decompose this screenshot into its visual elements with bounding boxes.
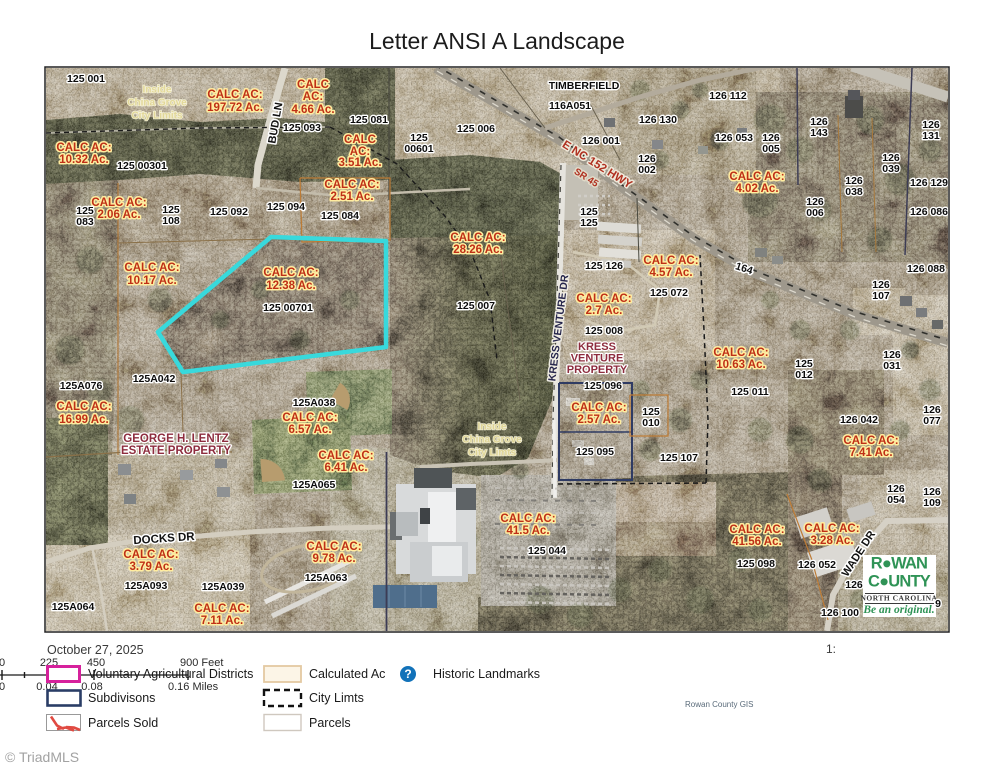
svg-text:Be an original.: Be an original. [862,604,934,616]
svg-text:125 011: 125 011 [731,386,769,398]
svg-text:054: 054 [887,494,905,506]
svg-text:CALC AC:: CALC AC: [500,513,555,525]
svg-text:126 112: 126 112 [709,90,747,102]
svg-text:Voluntary Agricultural Distric: Voluntary Agricultural Districts [88,667,253,681]
svg-text:125 044: 125 044 [528,545,566,557]
svg-text:VENTURE: VENTURE [571,352,624,364]
svg-text:038: 038 [845,186,863,198]
svg-text:197.72 Ac.: 197.72 Ac. [207,102,263,114]
svg-text:2.57 Ac.: 2.57 Ac. [577,414,620,426]
svg-text:10.63 Ac.: 10.63 Ac. [716,359,765,371]
svg-text:41.56 Ac.: 41.56 Ac. [732,536,781,548]
svg-text:6.57 Ac.: 6.57 Ac. [288,424,331,436]
svg-text:4.57 Ac.: 4.57 Ac. [649,267,692,279]
svg-text:126 086: 126 086 [910,206,948,218]
svg-text:© TriadMLS: © TriadMLS [5,749,79,765]
svg-text:CALC AC:: CALC AC: [56,401,111,413]
svg-text:City Limts: City Limts [468,448,517,459]
svg-text:AC:: AC: [303,91,323,103]
svg-text:126 042: 126 042 [840,414,878,426]
svg-text:125A063: 125A063 [305,572,348,584]
svg-text:CALC AC:: CALC AC: [123,549,178,561]
svg-text:CALC AC:: CALC AC: [282,412,337,424]
svg-text:China Grove: China Grove [127,98,187,109]
svg-text:7.41 Ac.: 7.41 Ac. [849,447,892,459]
svg-text:CALC: CALC [344,134,376,146]
svg-text:?: ? [404,667,411,681]
svg-text:125A065: 125A065 [293,479,336,491]
svg-text:CALC AC:: CALC AC: [843,435,898,447]
svg-text:126: 126 [845,579,863,591]
svg-text:125 008: 125 008 [585,325,623,337]
svg-text:Inside: Inside [143,85,172,96]
svg-text:9: 9 [935,598,941,610]
svg-text:PROPERTY: PROPERTY [567,364,628,376]
svg-text:ESTATE PROPERTY: ESTATE PROPERTY [121,445,231,457]
svg-text:125 096: 125 096 [584,380,622,392]
svg-text:16.99 Ac.: 16.99 Ac. [59,414,108,426]
svg-text:126 053: 126 053 [715,132,753,144]
svg-text:CALC AC:: CALC AC: [318,450,373,462]
svg-text:12.38 Ac.: 12.38 Ac. [266,280,315,292]
svg-text:Parcels Sold: Parcels Sold [88,716,158,730]
svg-text:NORTH CAROLINA: NORTH CAROLINA [861,594,938,603]
svg-text:China Grove: China Grove [462,435,522,446]
svg-text:Calculated Ac: Calculated Ac [309,667,385,681]
svg-text:0: 0 [0,681,5,693]
svg-text:2.51 Ac.: 2.51 Ac. [330,191,373,203]
svg-text:109: 109 [923,497,941,509]
svg-text:CALC AC:: CALC AC: [450,232,505,244]
svg-text:126 130: 126 130 [639,114,677,126]
svg-text:CALC AC:: CALC AC: [91,197,146,209]
svg-text:4.02 Ac.: 4.02 Ac. [735,183,778,195]
svg-text:Inside: Inside [478,422,507,433]
svg-text:125A076: 125A076 [60,380,103,392]
svg-text:0.16 Miles: 0.16 Miles [168,681,219,693]
svg-text:CALC AC:: CALC AC: [571,402,626,414]
svg-text:CALC AC:: CALC AC: [263,267,318,279]
svg-text:039: 039 [882,163,900,175]
svg-text:City Limits: City Limits [131,111,183,122]
svg-text:077: 077 [923,415,941,427]
svg-text:125 094: 125 094 [267,201,305,213]
svg-text:125A039: 125A039 [202,581,245,593]
svg-text:CALC: CALC [297,79,329,91]
svg-text:CALC AC:: CALC AC: [124,262,179,274]
svg-text:October 27, 2025: October 27, 2025 [47,643,144,657]
svg-text:006: 006 [806,207,824,219]
svg-text:2.7 Ac.: 2.7 Ac. [586,305,623,317]
svg-text:C●UNTY: C●UNTY [868,572,931,590]
svg-text:Letter ANSI A Landscape: Letter ANSI A Landscape [369,28,625,54]
svg-text:031: 031 [883,360,901,372]
svg-text:CALC AC:: CALC AC: [194,603,249,615]
svg-text:R●WAN: R●WAN [871,554,927,572]
svg-text:KRESS: KRESS [578,341,616,353]
svg-text:125 007: 125 007 [457,300,495,312]
svg-text:002: 002 [638,164,656,176]
svg-text:125 093: 125 093 [283,122,321,134]
svg-text:TIMBERFIELD: TIMBERFIELD [549,80,620,92]
svg-text:125A042: 125A042 [133,373,176,385]
svg-text:126 001: 126 001 [582,135,620,147]
svg-text:083: 083 [76,216,94,228]
svg-text:9.78 Ac.: 9.78 Ac. [312,553,355,565]
svg-text:126 100: 126 100 [821,607,859,619]
svg-text:Historic Landmarks: Historic Landmarks [433,667,540,681]
svg-text:125: 125 [580,217,598,229]
svg-text:28.26 Ac.: 28.26 Ac. [453,244,502,256]
svg-text:3.51 Ac.: 3.51 Ac. [338,157,381,169]
svg-text:CALC AC:: CALC AC: [729,171,784,183]
svg-text:CALC AC:: CALC AC: [576,293,631,305]
svg-text:125A064: 125A064 [52,601,95,613]
svg-text:Rowan County GIS: Rowan County GIS [685,700,753,709]
svg-text:3.28 Ac.: 3.28 Ac. [810,535,853,547]
svg-text:1:: 1: [826,642,836,656]
svg-text:10.32 Ac.: 10.32 Ac. [59,154,108,166]
svg-text:010: 010 [642,417,660,429]
svg-text:005: 005 [762,143,780,155]
svg-text:Parcels: Parcels [309,716,351,730]
svg-text:125 098: 125 098 [737,558,775,570]
svg-text:012: 012 [795,369,813,381]
svg-text:125 006: 125 006 [457,123,495,135]
svg-text:00601: 00601 [404,143,433,155]
svg-text:41.5 Ac.: 41.5 Ac. [506,525,549,537]
svg-text:CALC AC:: CALC AC: [729,524,784,536]
svg-text:10.17 Ac.: 10.17 Ac. [127,275,176,287]
svg-text:0: 0 [0,657,5,669]
svg-text:GEORGE H. LENTZ: GEORGE H. LENTZ [123,433,228,445]
svg-text:125 081: 125 081 [350,114,388,126]
svg-text:126 088: 126 088 [907,263,945,275]
svg-text:131: 131 [922,130,940,142]
svg-text:CALC AC:: CALC AC: [207,89,262,101]
svg-text:143: 143 [810,127,828,139]
svg-text:CALC AC:: CALC AC: [643,255,698,267]
svg-text:2.06 Ac.: 2.06 Ac. [97,209,140,221]
svg-text:CALC AC:: CALC AC: [306,541,361,553]
svg-text:4.66 Ac.: 4.66 Ac. [291,104,334,116]
svg-text:107: 107 [872,290,890,302]
svg-text:125 095: 125 095 [576,446,614,458]
svg-text:108: 108 [162,215,180,227]
svg-text:CALC AC:: CALC AC: [713,347,768,359]
svg-text:125A038: 125A038 [293,397,336,409]
svg-text:126 052: 126 052 [798,559,836,571]
svg-text:7.11 Ac.: 7.11 Ac. [201,615,243,627]
svg-text:125 00701: 125 00701 [263,302,313,314]
svg-text:3.79 Ac.: 3.79 Ac. [129,561,172,573]
svg-text:Subdivisons: Subdivisons [88,691,155,705]
svg-text:125 084: 125 084 [321,210,359,222]
svg-text:City Limts: City Limts [309,691,364,705]
svg-text:125 072: 125 072 [650,287,688,299]
svg-text:125A093: 125A093 [125,580,168,592]
svg-text:125 001: 125 001 [67,73,105,85]
svg-text:125 092: 125 092 [210,206,248,218]
svg-text:CALC AC:: CALC AC: [804,523,859,535]
svg-text:6.41 Ac.: 6.41 Ac. [324,462,367,474]
svg-text:CALC AC:: CALC AC: [324,179,379,191]
svg-text:125 126: 125 126 [585,260,623,272]
svg-text:125 00301: 125 00301 [117,160,167,172]
svg-text:125 107: 125 107 [660,452,698,464]
svg-text:126 129: 126 129 [910,177,948,189]
svg-text:CALC AC:: CALC AC: [56,142,111,154]
svg-text:116A051: 116A051 [549,100,591,112]
